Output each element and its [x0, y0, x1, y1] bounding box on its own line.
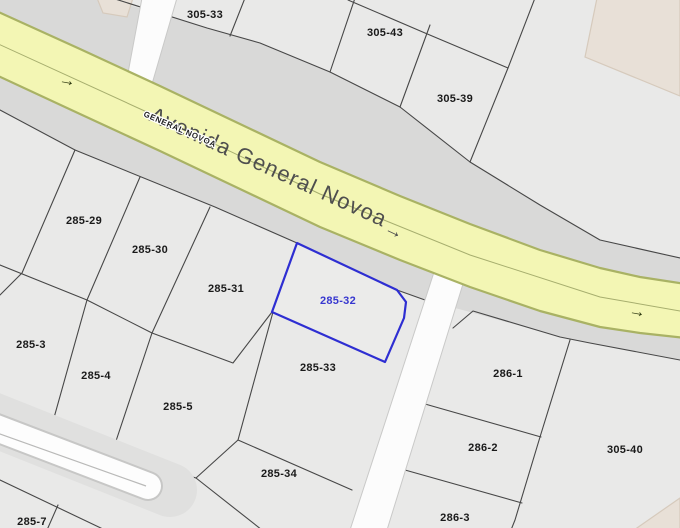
parcel-label-286-1[interactable]: 286-1	[493, 368, 523, 380]
parcel-label-285-34[interactable]: 285-34	[261, 468, 298, 480]
parcel-label-285-5[interactable]: 285-5	[163, 401, 193, 413]
selected-parcel-label[interactable]: 285-32	[320, 295, 356, 307]
parcel-label-285-31[interactable]: 285-31	[208, 283, 244, 295]
parcel-label-285-33[interactable]: 285-33	[300, 362, 336, 374]
parcel-label-305-33[interactable]: 305-33	[187, 9, 223, 21]
parcel-label-305-39[interactable]: 305-39	[437, 93, 473, 105]
parcel-label-305-43[interactable]: 305-43	[367, 27, 403, 39]
parcel-label-305-40[interactable]: 305-40	[607, 444, 643, 456]
parcel-label-285-4[interactable]: 285-4	[81, 370, 111, 382]
parcel-label-286-2[interactable]: 286-2	[468, 442, 498, 454]
parcel-label-286-3[interactable]: 286-3	[440, 512, 470, 524]
direction-arrow-icon: →	[627, 300, 647, 322]
parcel-label-285-29[interactable]: 285-29	[66, 215, 102, 227]
parcel-label-285-30[interactable]: 285-30	[132, 244, 168, 256]
parcel-label-285-3[interactable]: 285-3	[16, 339, 46, 351]
parcel-label-285-7[interactable]: 285-7	[17, 516, 47, 528]
map-canvas[interactable]: → → Avenida General Novoa → GENERAL NOVO…	[0, 0, 680, 528]
direction-arrow-icon: →	[57, 69, 77, 91]
